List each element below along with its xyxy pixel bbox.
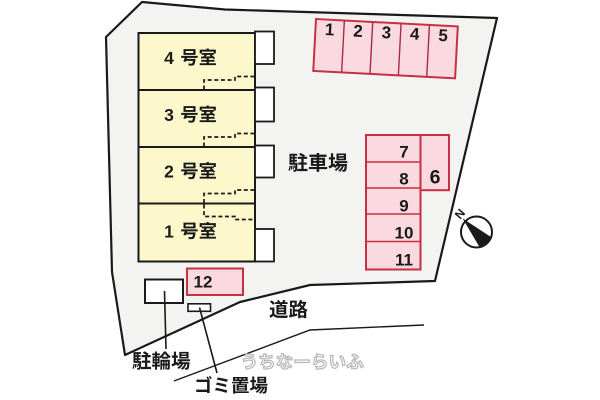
svg-text:8: 8: [399, 170, 408, 189]
svg-text:1: 1: [164, 222, 174, 242]
svg-text:3: 3: [381, 23, 391, 42]
svg-text:6: 6: [430, 167, 441, 189]
svg-text:4: 4: [410, 24, 421, 43]
svg-text:1: 1: [324, 20, 334, 39]
svg-text:5: 5: [438, 26, 448, 45]
svg-text:12: 12: [194, 273, 213, 292]
svg-text:2: 2: [353, 21, 363, 40]
svg-text:3: 3: [164, 105, 174, 125]
svg-text:11: 11: [395, 251, 413, 270]
svg-text:10: 10: [395, 224, 414, 243]
svg-text:9: 9: [399, 197, 408, 216]
svg-text:2: 2: [164, 162, 174, 182]
svg-text:7: 7: [399, 143, 408, 162]
svg-text:4: 4: [164, 48, 174, 68]
